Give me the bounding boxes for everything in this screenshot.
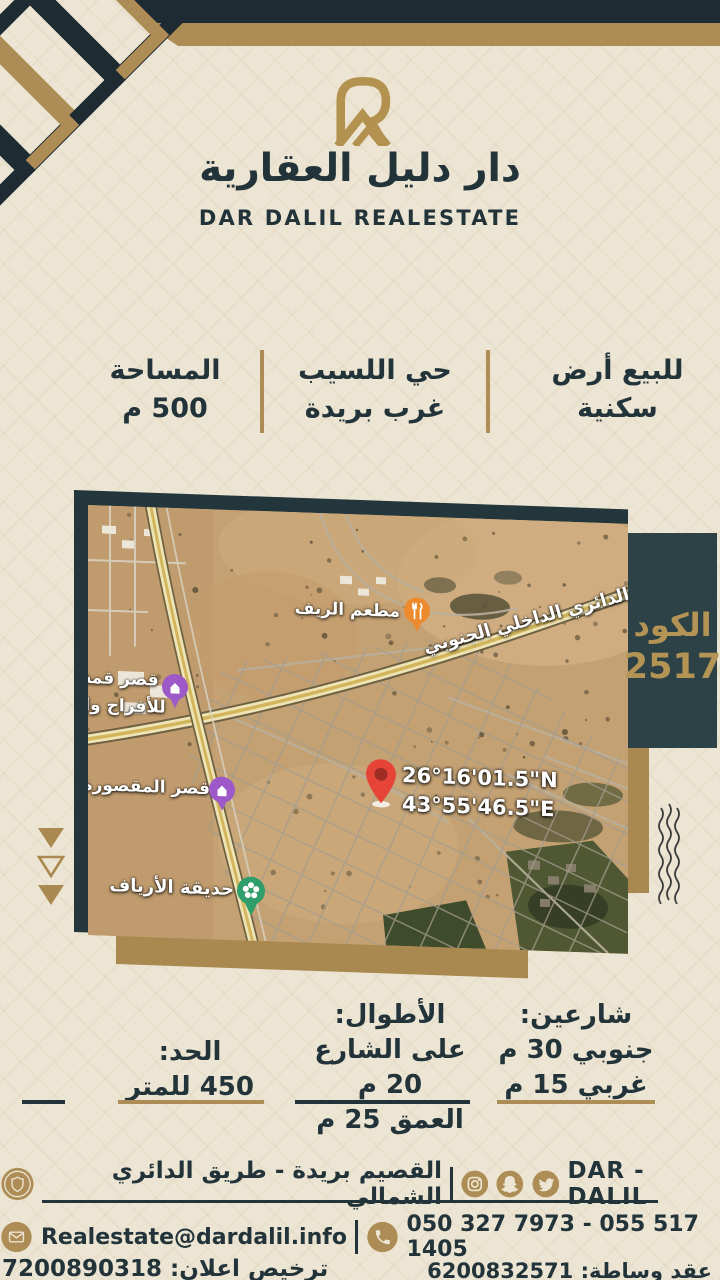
details-streets-line1: جنوبي 30 م xyxy=(486,1033,666,1068)
details-lengths-title: الأطوال: xyxy=(295,998,485,1033)
summary-divider-right xyxy=(486,350,490,433)
red-location-pin xyxy=(362,757,400,810)
footer-divider-bar2 xyxy=(355,1220,358,1254)
details-streets: شارعين: جنوبي 30 م غربي 15 م xyxy=(486,998,666,1103)
envelope-icon xyxy=(0,1218,33,1256)
code-gold-bar xyxy=(628,748,649,893)
summary-area-line1: المساحة xyxy=(70,352,260,390)
footer-email: Realestate@dardalil.info xyxy=(41,1225,347,1250)
underline-price xyxy=(118,1100,264,1104)
phone-icon xyxy=(366,1218,399,1256)
details-lengths: الأطوال: على الشارع 20 م العمق 25 م xyxy=(295,998,485,1138)
details-lengths-line1: على الشارع 20 م xyxy=(295,1033,485,1103)
details-price-title: الحد: xyxy=(100,1035,280,1070)
snapchat-icon xyxy=(496,1169,524,1199)
summary-area-line2: 500 م xyxy=(70,390,260,428)
park-label: حديقة الأرياف xyxy=(116,875,234,900)
underline-dash-decor xyxy=(22,1100,65,1104)
restaurant-marker-icon xyxy=(402,596,432,633)
summary-area: المساحة 500 م xyxy=(70,352,260,436)
squiggle-decor xyxy=(656,802,684,904)
summary-district-line1: حي اللسيب xyxy=(275,352,475,390)
code-label: الكود xyxy=(633,605,711,645)
corner-chevrons-decor xyxy=(0,0,250,290)
details-lengths-line2: العمق 25 م xyxy=(295,1103,485,1138)
code-value: 2517 xyxy=(624,645,720,689)
license-ad-number: ترخيص اعلان: 7200890318 xyxy=(2,1256,328,1280)
code-panel: الكود 2517 xyxy=(628,533,717,748)
palace-maqsurah-label: قصر المقصورة xyxy=(100,775,210,799)
summary-district-line2: غرب بريدة xyxy=(275,390,475,428)
palace-marker-icon xyxy=(207,775,237,812)
summary-offer: للبيع أرض سكنية xyxy=(505,352,720,436)
brand-logo-mark-icon xyxy=(322,72,400,146)
underline-lengths xyxy=(295,1100,470,1104)
satellite-location-map: الدائري الداخلي الجنوبي مطعم الريف قصر ق… xyxy=(88,505,628,954)
summary-offer-line1: للبيع أرض xyxy=(505,352,720,390)
palace-marker-icon xyxy=(160,673,190,710)
summary-divider-left xyxy=(260,350,264,433)
instagram-icon xyxy=(461,1169,489,1199)
footer-phones: 050 327 7973 - 055 517 1405 xyxy=(407,1212,720,1262)
badge-logo-icon xyxy=(0,1165,35,1203)
details-streets-title: شارعين: xyxy=(486,998,666,1033)
twitter-icon xyxy=(532,1169,560,1199)
footer-row-contact: Realestate@dardalil.info 050 327 7973 - … xyxy=(0,1212,720,1262)
details-price: الحد: 450 للمتر xyxy=(100,998,280,1105)
underline-streets xyxy=(497,1100,655,1104)
park-marker-icon xyxy=(234,874,268,917)
map-coordinates: 26°16'01.5"N 43°55'46.5"E xyxy=(402,761,558,824)
summary-offer-line2: سكنية xyxy=(505,390,720,428)
footer-divider-bar xyxy=(450,1167,453,1201)
details-streets-line2: غربي 15 م xyxy=(486,1068,666,1103)
triangle-decor xyxy=(34,826,68,916)
palace-qimmah-label-line1: قصر قمة xyxy=(88,668,160,691)
real-estate-flyer: دار دليل العقارية DAR DALIL REALESTATE ل… xyxy=(0,0,720,1280)
coordinate-longitude: 43°55'46.5"E xyxy=(402,790,558,824)
license-contract-number: عقد وساطة: 6200832571 xyxy=(427,1259,712,1280)
summary-district: حي اللسيب غرب بريدة xyxy=(275,352,475,436)
footer-divider-line xyxy=(42,1200,658,1203)
